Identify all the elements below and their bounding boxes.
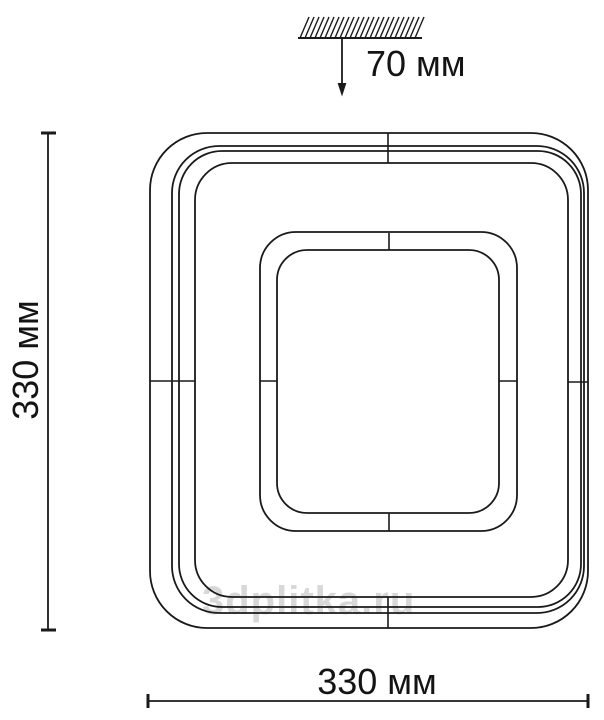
outer-contour-1 bbox=[150, 133, 588, 628]
inner-ring-seams bbox=[260, 233, 517, 531]
mount-distance-label: 70 мм bbox=[366, 46, 466, 82]
fixture-outer-frame bbox=[150, 133, 588, 628]
dimension-drawing-canvas: 3dplitka.ru bbox=[0, 0, 604, 720]
down-arrow-icon bbox=[338, 39, 347, 97]
ceiling-hatch-icon bbox=[300, 17, 424, 38]
fixture-inner-ring bbox=[260, 232, 517, 531]
inner-ring-outer-contour bbox=[260, 232, 517, 531]
height-dimension-label: 330 мм bbox=[8, 300, 44, 420]
width-dimension-label: 330 мм bbox=[317, 664, 437, 700]
outer-frame-seams bbox=[150, 133, 588, 628]
inner-ring-inner-contour bbox=[277, 250, 499, 513]
fixture-drawing bbox=[0, 0, 604, 720]
outer-contour-2 bbox=[172, 146, 584, 613]
seam-marks bbox=[150, 133, 588, 628]
outer-contour-3 bbox=[179, 151, 581, 607]
